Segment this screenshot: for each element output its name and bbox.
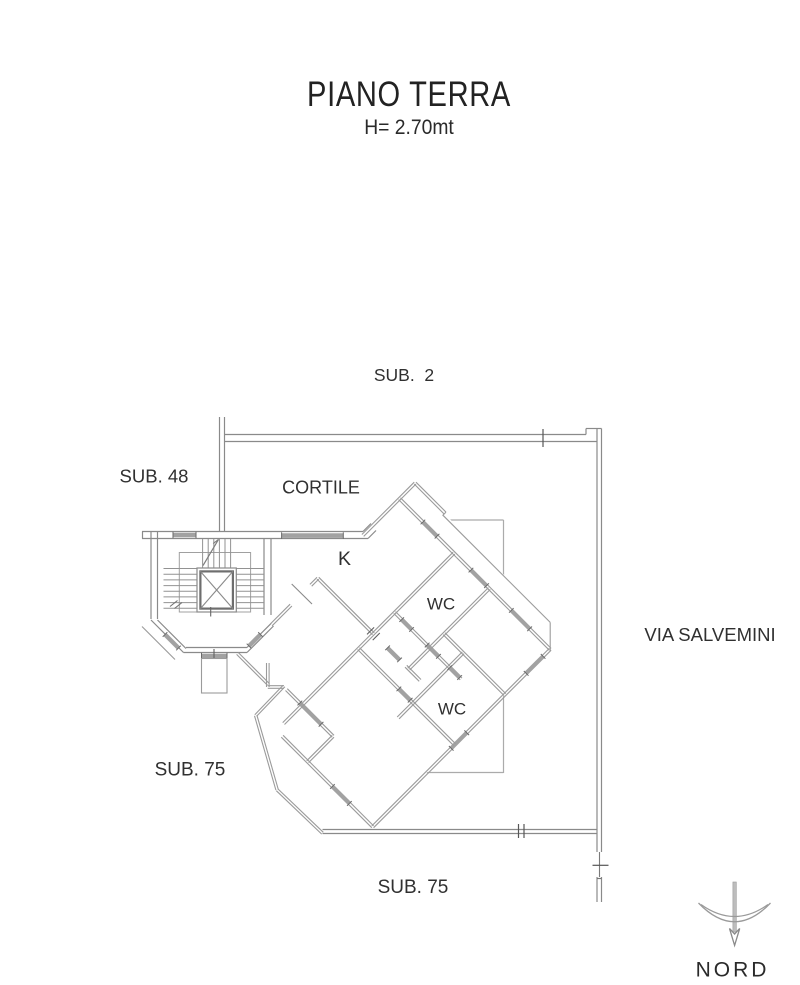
svg-text:VIA SALVEMINI: VIA SALVEMINI <box>644 624 775 645</box>
svg-text:PIANO TERRA: PIANO TERRA <box>307 74 511 113</box>
svg-text:SUB. 48: SUB. 48 <box>120 466 189 487</box>
svg-text:CORTILE: CORTILE <box>282 478 360 498</box>
svg-text:H= 2.70mt: H= 2.70mt <box>364 116 454 139</box>
svg-text:K: K <box>338 548 351 570</box>
svg-text:SUB. 75: SUB. 75 <box>378 877 449 898</box>
svg-text:NORD: NORD <box>696 959 770 982</box>
svg-text:WC: WC <box>438 700 466 719</box>
svg-text:SUB. 75: SUB. 75 <box>155 760 226 781</box>
svg-text:SUB. 2: SUB. 2 <box>374 365 434 385</box>
svg-text:WC: WC <box>427 595 455 614</box>
